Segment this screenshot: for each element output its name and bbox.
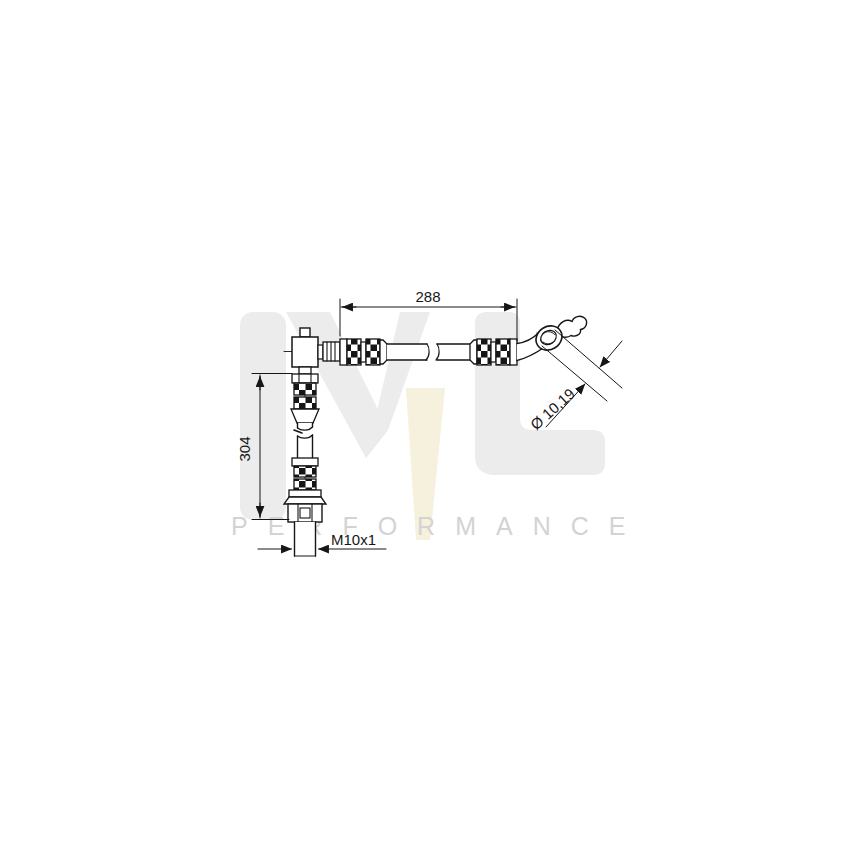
horizontal-hose-shaft — [318, 342, 340, 361]
crimp-sleeve-top-vertical — [291, 367, 319, 423]
dimension-288-label: 288 — [415, 288, 440, 305]
horizontal-hose-tube — [387, 344, 470, 360]
dimension-304-label: 304 — [236, 436, 253, 461]
hex-nut — [288, 504, 322, 522]
crimp-sleeve-bottom-vertical — [284, 458, 326, 504]
vertical-hose-tube — [294, 423, 313, 458]
dimension-thread-label: M10x1 — [331, 531, 376, 548]
threaded-stub — [295, 522, 316, 556]
crimp-sleeve-right — [470, 339, 517, 365]
technical-drawing-canvas: PERFORMANCE — [0, 0, 850, 850]
crimp-sleeve-left — [340, 339, 387, 365]
dimension-eye-diameter-label: Ø 10,19 — [527, 385, 578, 433]
product-image-canvas: PERFORMANCE — [0, 0, 850, 850]
